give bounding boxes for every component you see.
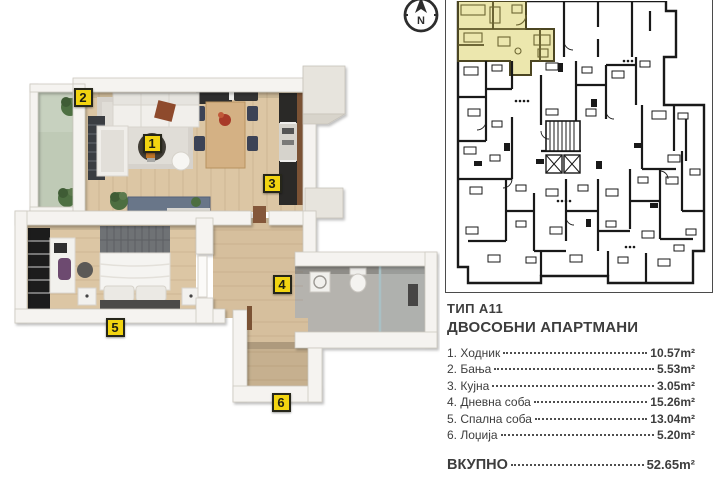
room-number-badge-2: 2 [74,88,93,107]
room-area: 13.04m² [650,411,695,427]
room-name: 6. Лоџија [447,427,498,443]
dotted-leader [494,368,654,370]
room-number-badge-3: 3 [263,174,282,193]
room-number-badge-6: 6 [272,393,291,412]
dotted-leader [535,418,647,420]
total-label: ВКУПНО [447,456,508,474]
dotted-leader [503,352,647,354]
building-plan-frame [445,0,713,293]
area-list-item: 6. Лоџија 5.20m² [447,427,695,443]
dotted-leader [534,401,647,403]
dotted-leader [501,434,654,436]
area-list-item: 3. Кујна 3.05m² [447,378,695,394]
floor-plan-page: 1 2 3 4 5 6 N [0,0,720,501]
area-list: 1. Ходник 10.57m² 2. Бања 5.53m² 3. Кујн… [447,345,695,443]
unit-info-panel: ТИП А11 ДВОСОБНИ АПАРТМАНИ 1. Ходник 10.… [447,301,695,474]
dotted-leader [511,464,644,466]
room-number-badge-5: 5 [106,318,125,337]
room-area: 15.26m² [650,394,695,410]
unit-subtitle: ДВОСОБНИ АПАРТМАНИ [447,319,695,336]
area-list-item: 2. Бања 5.53m² [447,361,695,377]
room-number-badge-1: 1 [143,134,162,153]
room-name: 4. Дневна соба [447,394,531,410]
room-area: 5.20m² [657,427,695,443]
room-area: 10.57m² [650,345,695,361]
building-floor-plan [446,1,712,292]
room-name: 2. Бања [447,361,491,377]
compass-north-icon: N [400,0,442,35]
unit-type-label: ТИП А11 [447,301,695,316]
area-list-item: 5. Спална соба 13.04m² [447,411,695,427]
room-number-badge-4: 4 [273,275,292,294]
room-name: 1. Ходник [447,345,500,361]
room-name: 5. Спална соба [447,411,532,427]
room-area: 3.05m² [657,378,695,394]
area-list-item: 4. Дневна соба 15.26m² [447,394,695,410]
apartment-3d-plan: 1 2 3 4 5 6 [10,60,440,432]
area-list-item: 1. Ходник 10.57m² [447,345,695,361]
compass-label: N [417,15,425,27]
total-area-value: 52.65m² [647,456,695,474]
apartment-3d-plan-drawing [10,60,440,432]
dotted-leader [492,385,654,387]
room-name: 3. Кујна [447,378,489,394]
room-area: 5.53m² [657,361,695,377]
total-area-row: ВКУПНО 52.65m² [447,456,695,474]
